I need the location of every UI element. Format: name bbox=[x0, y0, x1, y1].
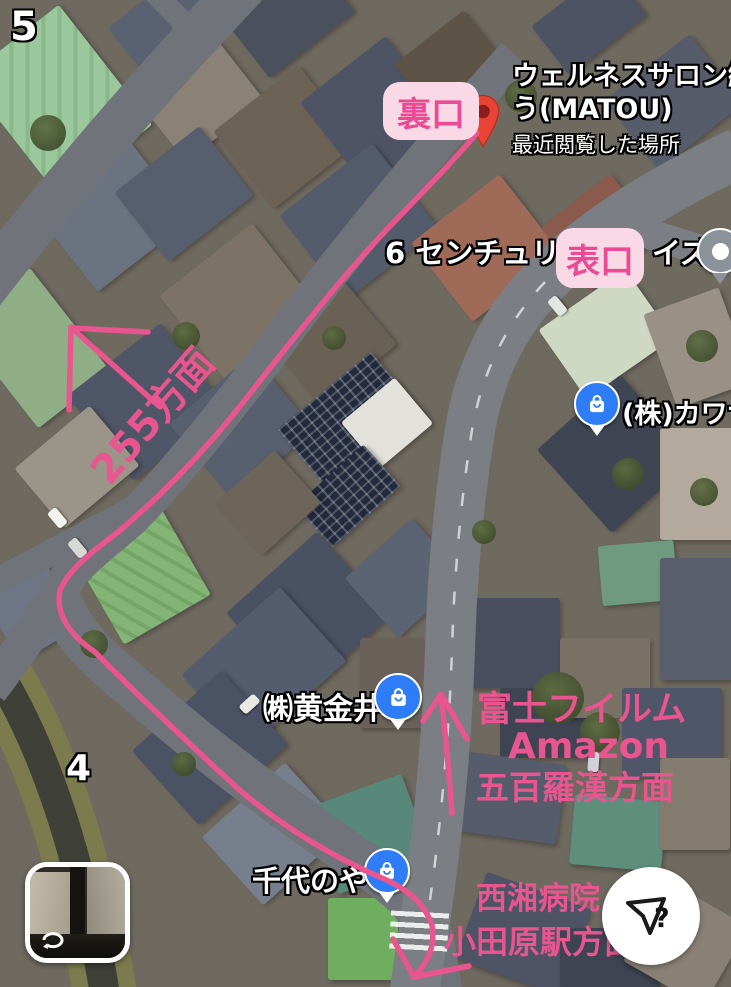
place-label-chiyonoya[interactable]: 千代のや bbox=[252, 858, 368, 900]
shopping-bag-icon bbox=[375, 859, 399, 883]
question-mark: ? bbox=[654, 903, 670, 934]
rotate-view-icon bbox=[38, 929, 68, 951]
annotation-seisho-hospital: 西湘病院 bbox=[476, 873, 600, 918]
blue-shopping-bag-pin-icon[interactable] bbox=[374, 673, 422, 735]
compass-arrow-icon bbox=[602, 867, 700, 965]
shopping-bag-icon bbox=[386, 685, 411, 710]
street-number-5: 5 bbox=[10, 4, 38, 50]
annotation-front-entrance: 表口 bbox=[556, 228, 644, 288]
street-number-4: 4 bbox=[66, 748, 91, 789]
streetview-photo bbox=[87, 867, 125, 938]
annotation-fujifilm: 富士フイルム bbox=[477, 681, 686, 732]
place-label-koganei[interactable]: ㈱黄金井 bbox=[263, 684, 383, 728]
compass-button[interactable]: ? bbox=[602, 867, 700, 965]
annotation-back-entrance: 裏口 bbox=[383, 82, 479, 140]
gray-dot-pin-icon[interactable] bbox=[697, 228, 731, 288]
annotation-gohyakurakan: 五百羅漢方面 bbox=[476, 761, 674, 809]
streetview-thumbnail[interactable] bbox=[25, 862, 130, 963]
satellite-map[interactable]: 5 4 ウェルネスサロン纏 う(MATOU) 最近閲覧した場所 6 センチュリー… bbox=[0, 0, 731, 987]
streetview-photo bbox=[70, 867, 85, 940]
place-label-wellness[interactable]: ウェルネスサロン纏 う(MATOU) 最近閲覧した場所 bbox=[512, 60, 731, 162]
crosswalk bbox=[389, 911, 449, 956]
blue-shopping-bag-pin-icon[interactable] bbox=[364, 848, 410, 908]
place-label-kawa[interactable]: (株)カワサ bbox=[622, 392, 731, 431]
blue-shopping-bag-pin-icon[interactable] bbox=[574, 381, 620, 441]
shopping-bag-icon bbox=[585, 392, 609, 416]
